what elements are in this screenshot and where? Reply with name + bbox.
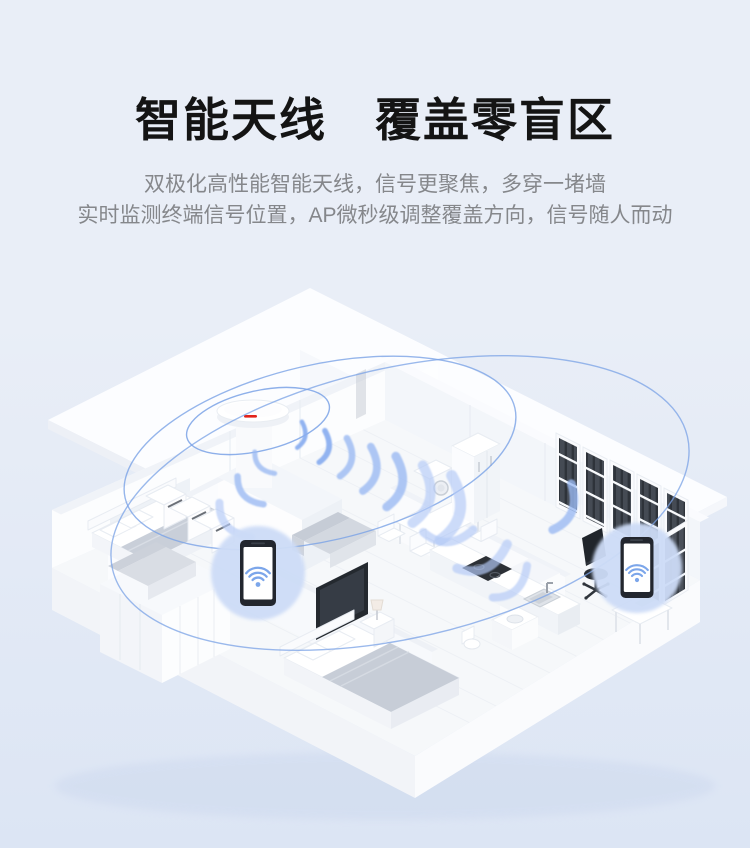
ap-brand-mark xyxy=(244,415,257,418)
coverage-illustration xyxy=(0,288,750,848)
smartphone xyxy=(240,540,276,606)
door-opening xyxy=(356,369,366,419)
phone-callout-right xyxy=(592,523,682,613)
subtitle-line-1: 双极化高性能智能天线，信号更聚焦，多穿一堵墙 xyxy=(0,169,750,200)
subtitle-block: 双极化高性能智能天线，信号更聚焦，多穿一堵墙 实时监测终端信号位置，AP微秒级调… xyxy=(0,169,750,231)
page-title: 智能天线 覆盖零盲区 xyxy=(0,84,750,150)
smartphone xyxy=(621,537,654,598)
promo-page: 智能天线 覆盖零盲区 双极化高性能智能天线，信号更聚焦，多穿一堵墙 实时监测终端… xyxy=(0,0,750,848)
lamp-shade xyxy=(371,600,383,610)
subtitle-line-2: 实时监测终端信号位置，AP微秒级调整覆盖方向，信号随人而动 xyxy=(0,200,750,231)
phone-callout-left xyxy=(211,526,305,620)
